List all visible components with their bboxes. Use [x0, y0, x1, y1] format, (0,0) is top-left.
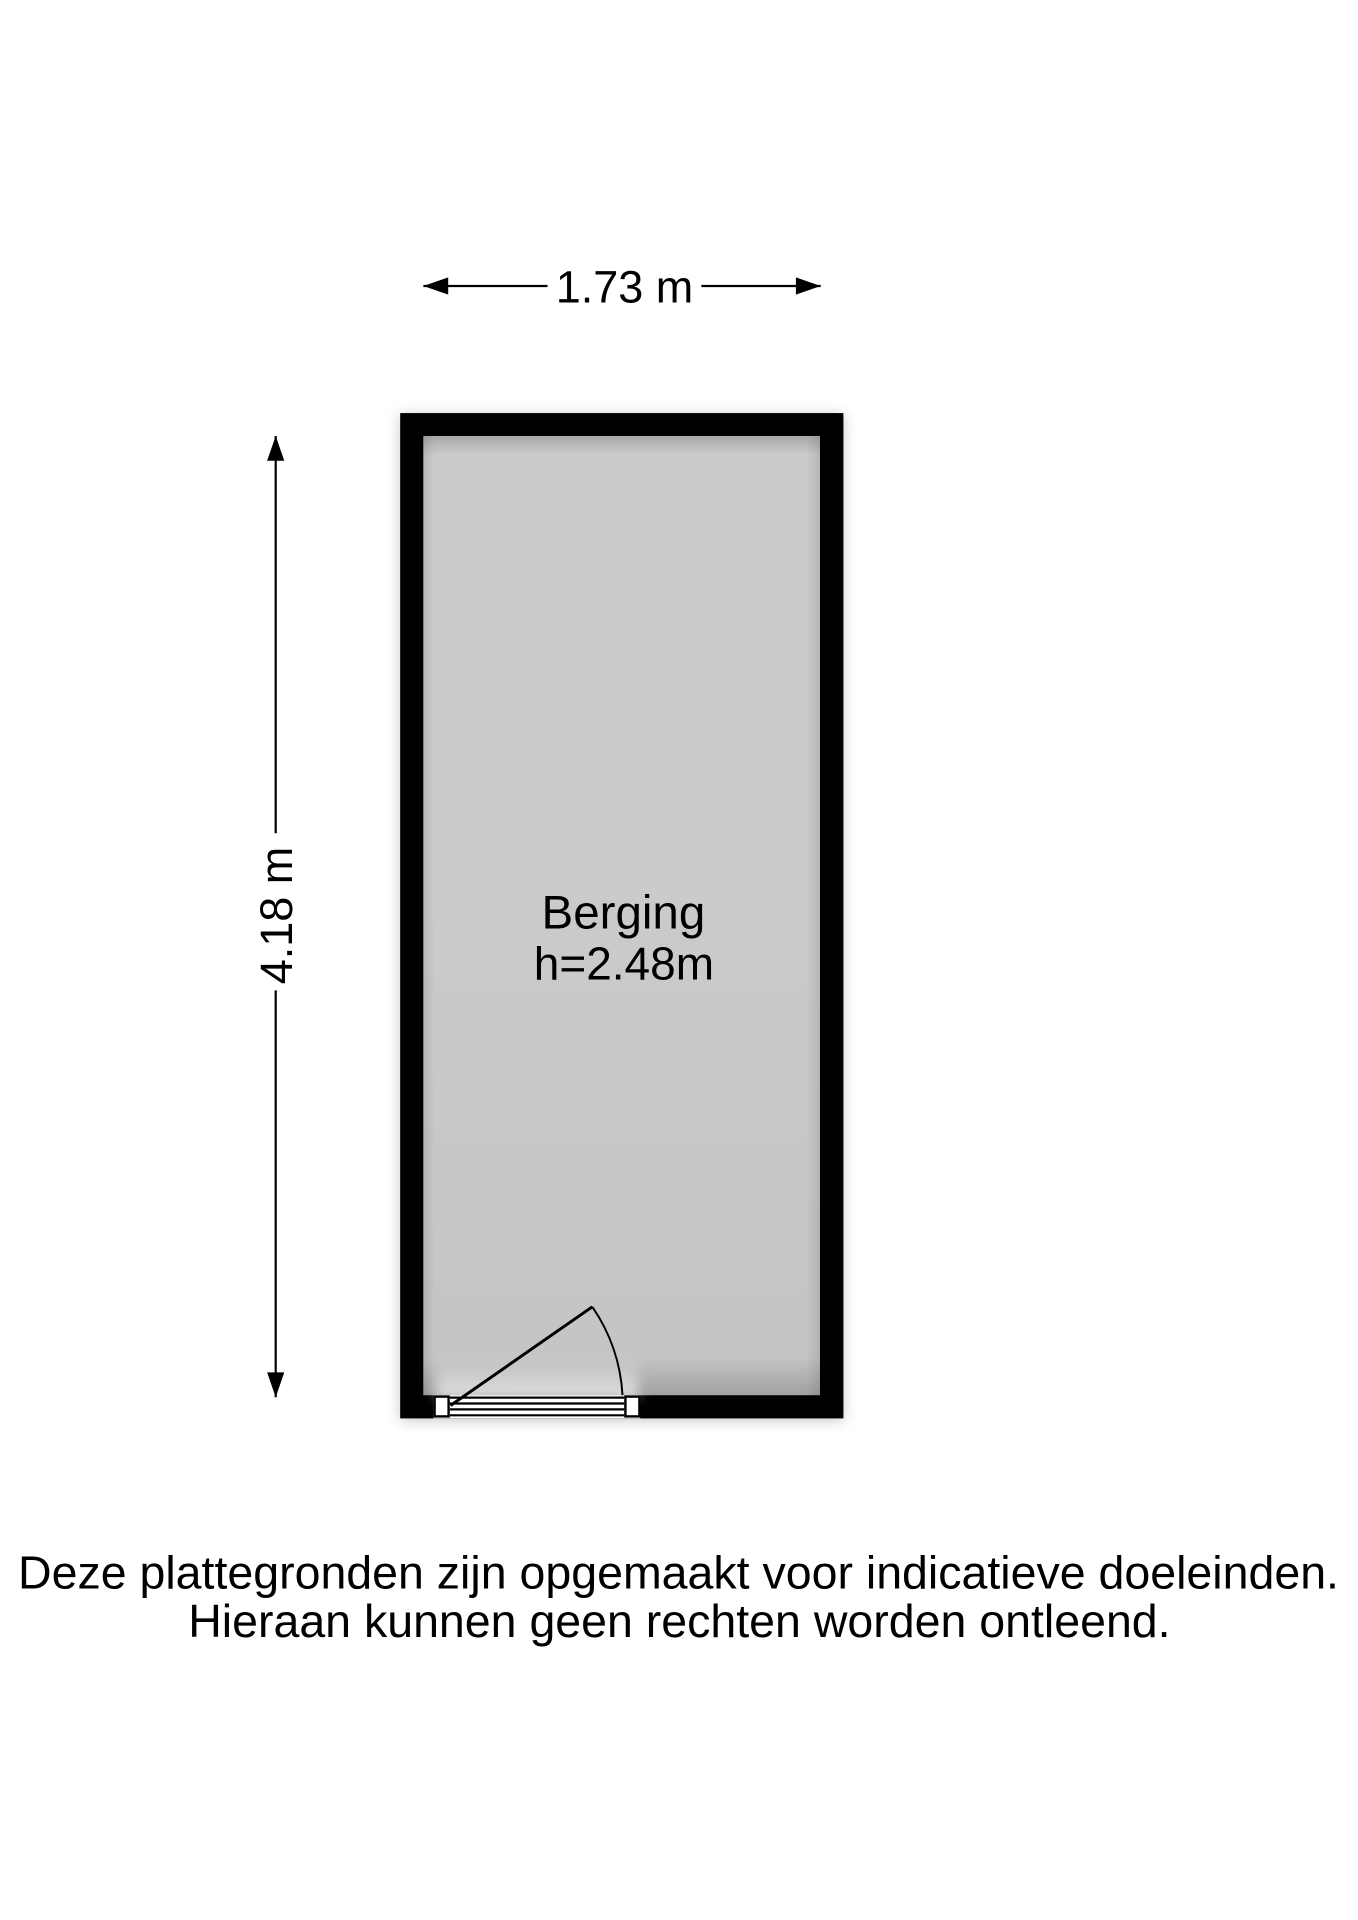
svg-text:h=2.48m: h=2.48m	[534, 938, 714, 990]
svg-text:Berging: Berging	[542, 887, 706, 940]
svg-text:Deze plattegronden zijn opgema: Deze plattegronden zijn opgemaakt voor i…	[18, 1547, 1339, 1599]
svg-text:4.18 m: 4.18 m	[251, 847, 302, 985]
svg-text:Hieraan kunnen geen rechten wo: Hieraan kunnen geen rechten worden ontle…	[188, 1595, 1170, 1647]
svg-text:1.73 m: 1.73 m	[556, 261, 694, 312]
